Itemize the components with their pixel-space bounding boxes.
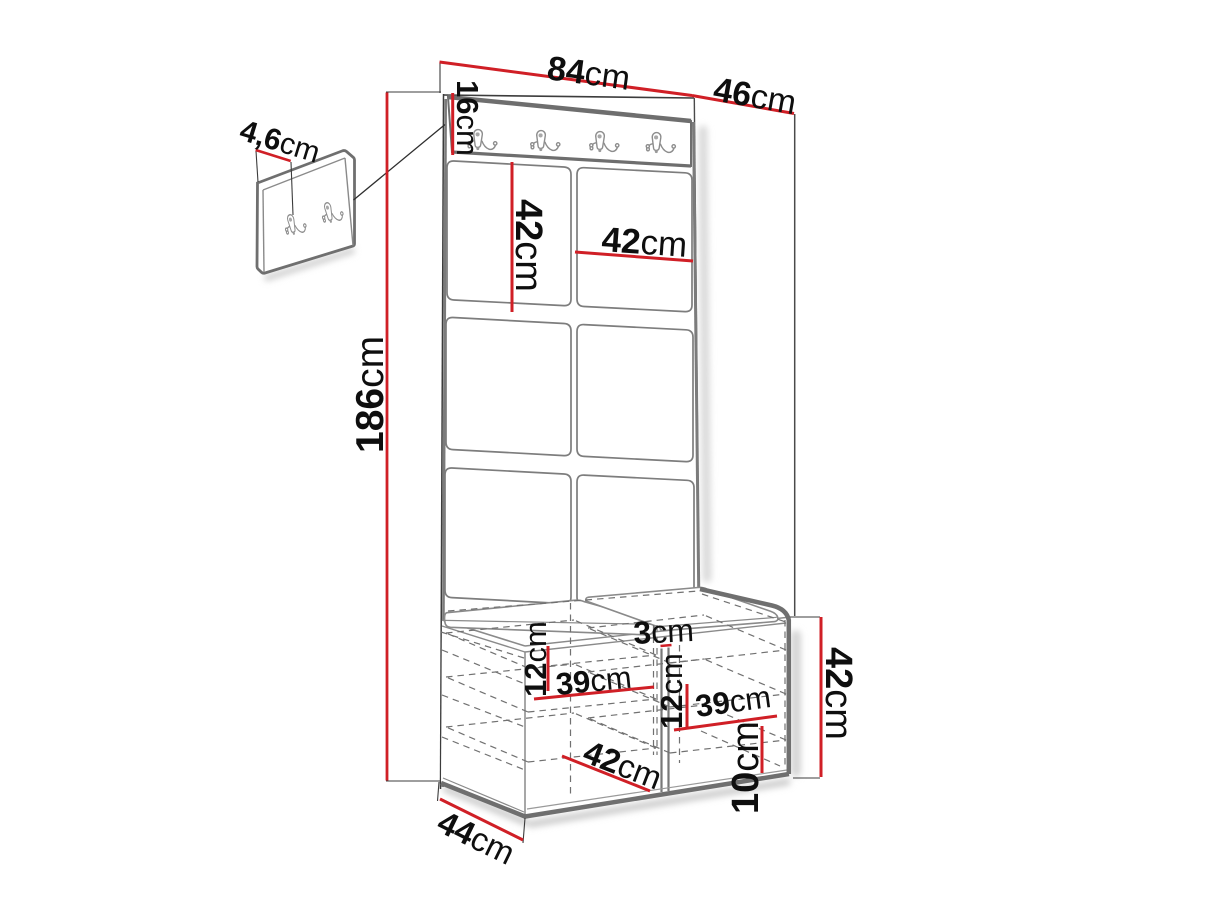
svg-text:12cm: 12cm (518, 621, 553, 697)
svg-text:16cm: 16cm (450, 80, 485, 156)
svg-text:10cm: 10cm (725, 721, 767, 814)
svg-text:186cm: 186cm (349, 336, 392, 453)
svg-text:3cm: 3cm (632, 612, 694, 651)
svg-text:39cm: 39cm (554, 660, 633, 702)
svg-text:12cm: 12cm (654, 653, 689, 729)
svg-text:42cm: 42cm (507, 199, 549, 292)
svg-text:42cm: 42cm (817, 647, 859, 740)
svg-text:42cm: 42cm (600, 220, 688, 265)
